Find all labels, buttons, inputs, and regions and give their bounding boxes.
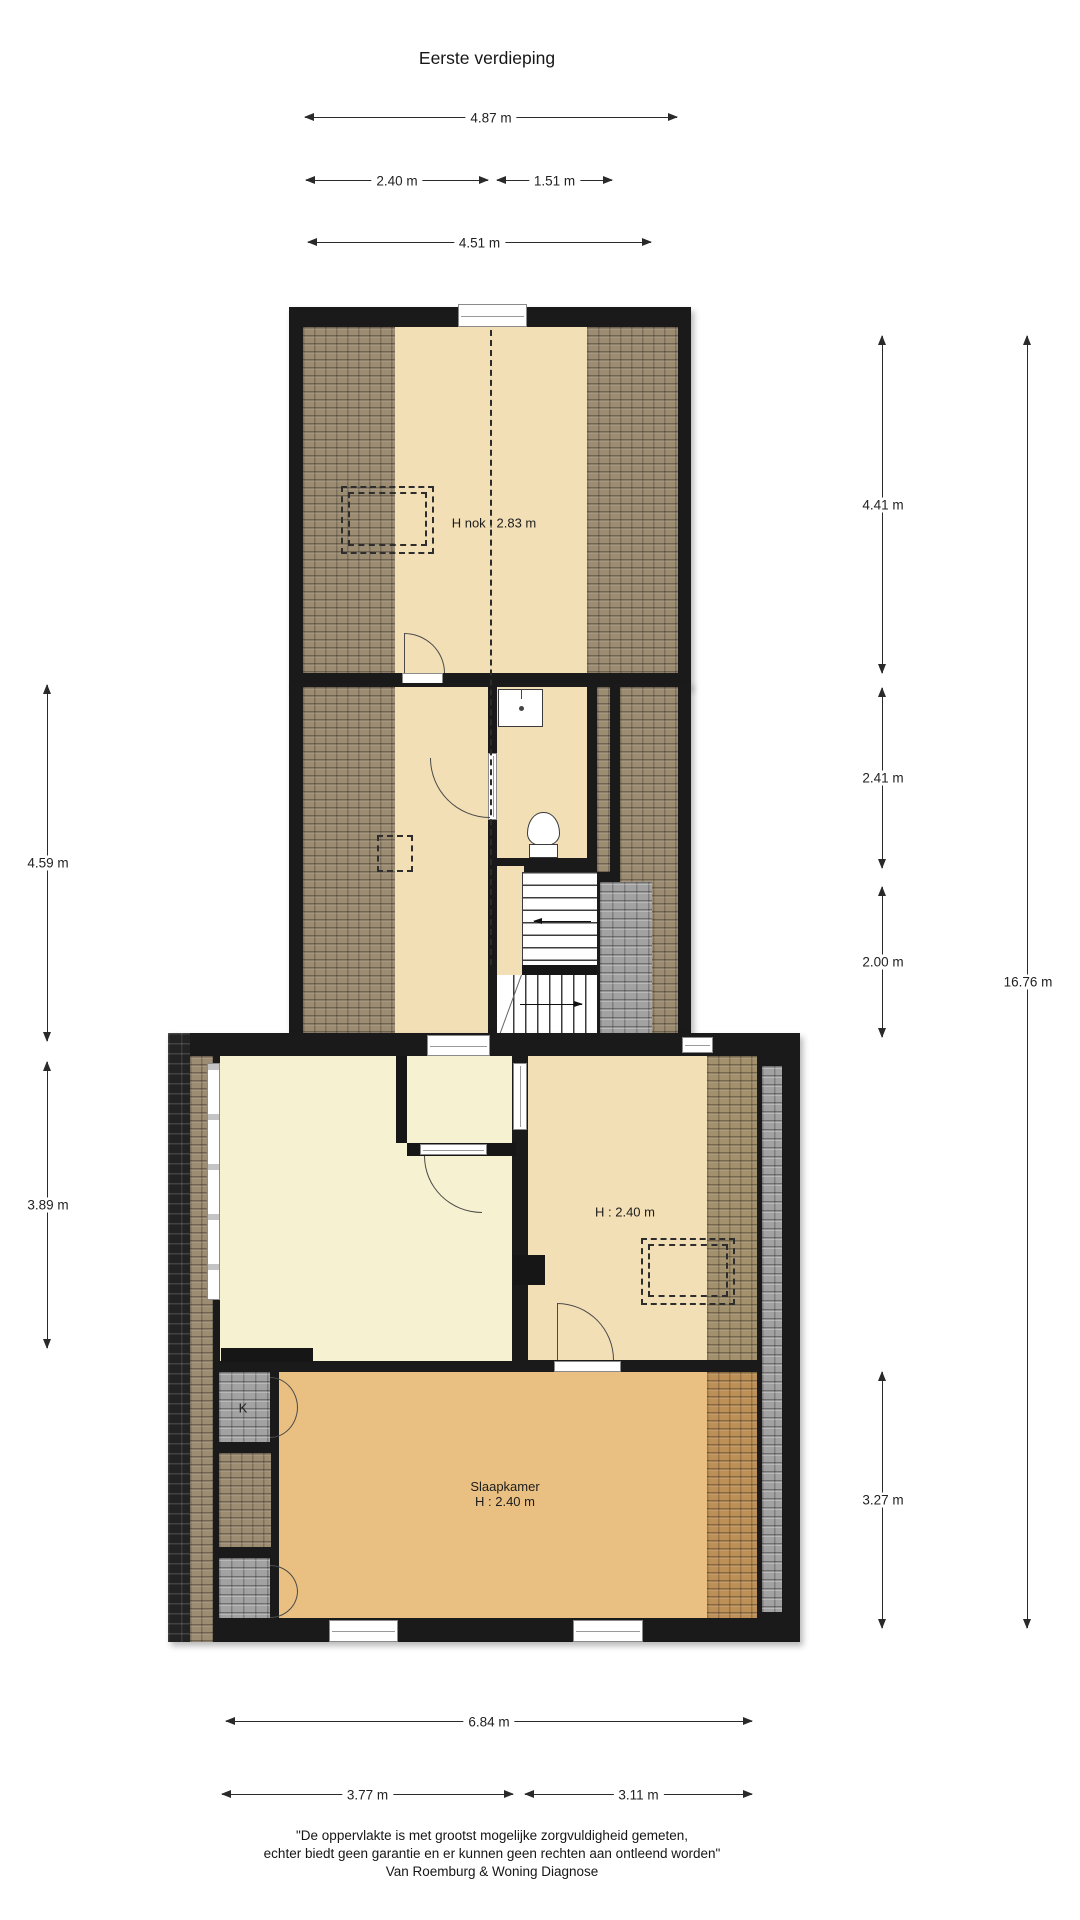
bedroom-height-label: H : 2.40 m [470, 1494, 539, 1509]
dimension-left-middle: 4.59 m [47, 685, 48, 1041]
bedroom-label: Slaapkamer H : 2.40 m [470, 1479, 539, 1509]
top-right-window [682, 1037, 713, 1053]
dimension-top-inner: 4.51 m [308, 242, 651, 243]
dimension-label: 2.41 m [857, 771, 908, 786]
dimension-label: 4.59 m [22, 856, 73, 871]
washing-machine-dot [519, 706, 524, 711]
dimension-right-landing: 2.41 m [882, 688, 883, 868]
dimension-label: 1.51 m [529, 174, 580, 189]
dimension-right-bedroom: 3.27 m [882, 1372, 883, 1628]
dimension-left-lower: 3.89 m [47, 1062, 48, 1348]
dimension-label: 3.77 m [342, 1788, 393, 1803]
dimension-right-attic: 4.41 m [882, 336, 883, 673]
stairs-down-arrow [520, 1004, 582, 1005]
dimension-label: 3.11 m [613, 1788, 663, 1803]
page-title: Eerste verdieping [419, 48, 555, 69]
stairs-lower-flight [513, 975, 597, 1035]
dimension-label: 4.87 m [465, 111, 516, 126]
dimension-top-overall: 4.87 m [305, 117, 677, 118]
dimension-bottom-left-segment: 3.77 m [222, 1794, 513, 1795]
bedroom-door-leaf [557, 1303, 558, 1360]
floorplan-page: Eerste verdieping 4.87 m 2.40 m 1.51 m 4… [0, 0, 1080, 1920]
bottom-window-right [573, 1620, 643, 1642]
dimension-bottom-overall: 6.84 m [226, 1721, 752, 1722]
attic-roof-slope-right [587, 327, 678, 673]
attic-height-label: H nok : 2.83 m [452, 516, 537, 531]
landing-roof-hatch-dashed [377, 835, 413, 872]
roof-patch-between-closets [219, 1453, 271, 1547]
attic-roof-window-dashed-inner [348, 492, 427, 546]
front-room-bottom-wall-segment [221, 1348, 313, 1362]
attic-window [458, 304, 527, 327]
lower-roof-edge-right-gray [762, 1066, 782, 1612]
right-roof-slope-over-room [707, 1056, 757, 1360]
chimney-block [513, 1255, 545, 1285]
nook-window [420, 1144, 487, 1155]
dimension-label: 3.89 m [22, 1198, 73, 1213]
lower-roof-edge-left [168, 1033, 190, 1642]
dimension-label: 3.27 m [857, 1493, 908, 1508]
disclaimer: "De oppervlakte is met grootst mogelijke… [72, 1827, 912, 1881]
toilet-tank-icon [529, 844, 558, 858]
stairwell-opening-sill [427, 1035, 490, 1056]
right-room-roof-window-dashed-inner [648, 1244, 728, 1297]
disclaimer-line-1: "De oppervlakte is met grootst mogelijke… [72, 1827, 912, 1845]
closet-label: K [239, 1401, 248, 1416]
attic-roof-window-dashed-outline [341, 486, 434, 554]
dimension-label: 16.76 m [999, 975, 1058, 990]
toilet-bowl-icon [527, 812, 560, 846]
bottom-window-left [329, 1620, 398, 1642]
dimension-top-left-segment: 2.40 m [306, 180, 488, 181]
interior-opening [513, 1063, 527, 1130]
attic-door-leaf [404, 633, 405, 673]
nook-wall-vertical [396, 1056, 407, 1143]
dimension-label: 4.41 m [857, 497, 908, 512]
right-room-height-label: H : 2.40 m [595, 1205, 655, 1220]
dimension-label: 2.40 m [371, 174, 422, 189]
bedroom-door-opening [554, 1361, 621, 1372]
disclaimer-line-3: Van Roemburg & Woning Diagnose [72, 1863, 912, 1881]
stairs-divider-wall [522, 965, 597, 975]
bedroom-name: Slaapkamer [470, 1479, 539, 1494]
dimension-label: 2.00 m [857, 955, 908, 970]
dimension-bottom-right-segment: 3.11 m [525, 1794, 752, 1795]
stairs-up-arrow [534, 921, 591, 922]
dimension-right-stairs: 2.00 m [882, 887, 883, 1037]
washing-machine-mark [521, 690, 522, 699]
closet-lower [219, 1558, 270, 1618]
dimension-label: 4.51 m [454, 236, 505, 251]
washing-machine-icon [498, 689, 543, 727]
dimension-right-total: 16.76 m [1027, 336, 1028, 1628]
disclaimer-line-2: echter biedt geen garantie en er kunnen … [72, 1845, 912, 1863]
dimension-top-right-segment: 1.51 m [497, 180, 612, 181]
right-roof-slope-over-bedroom [707, 1372, 757, 1618]
roof-ridge-dashed-line [490, 330, 492, 965]
dimension-label: 6.84 m [463, 1715, 514, 1730]
flat-roof-gray-patch [600, 882, 652, 1035]
landing-floor-strip [497, 866, 524, 975]
left-window-band [207, 1063, 220, 1300]
middle-roof-strip-inner [597, 687, 610, 872]
right-room-roof-window-dashed-outline [641, 1238, 735, 1305]
